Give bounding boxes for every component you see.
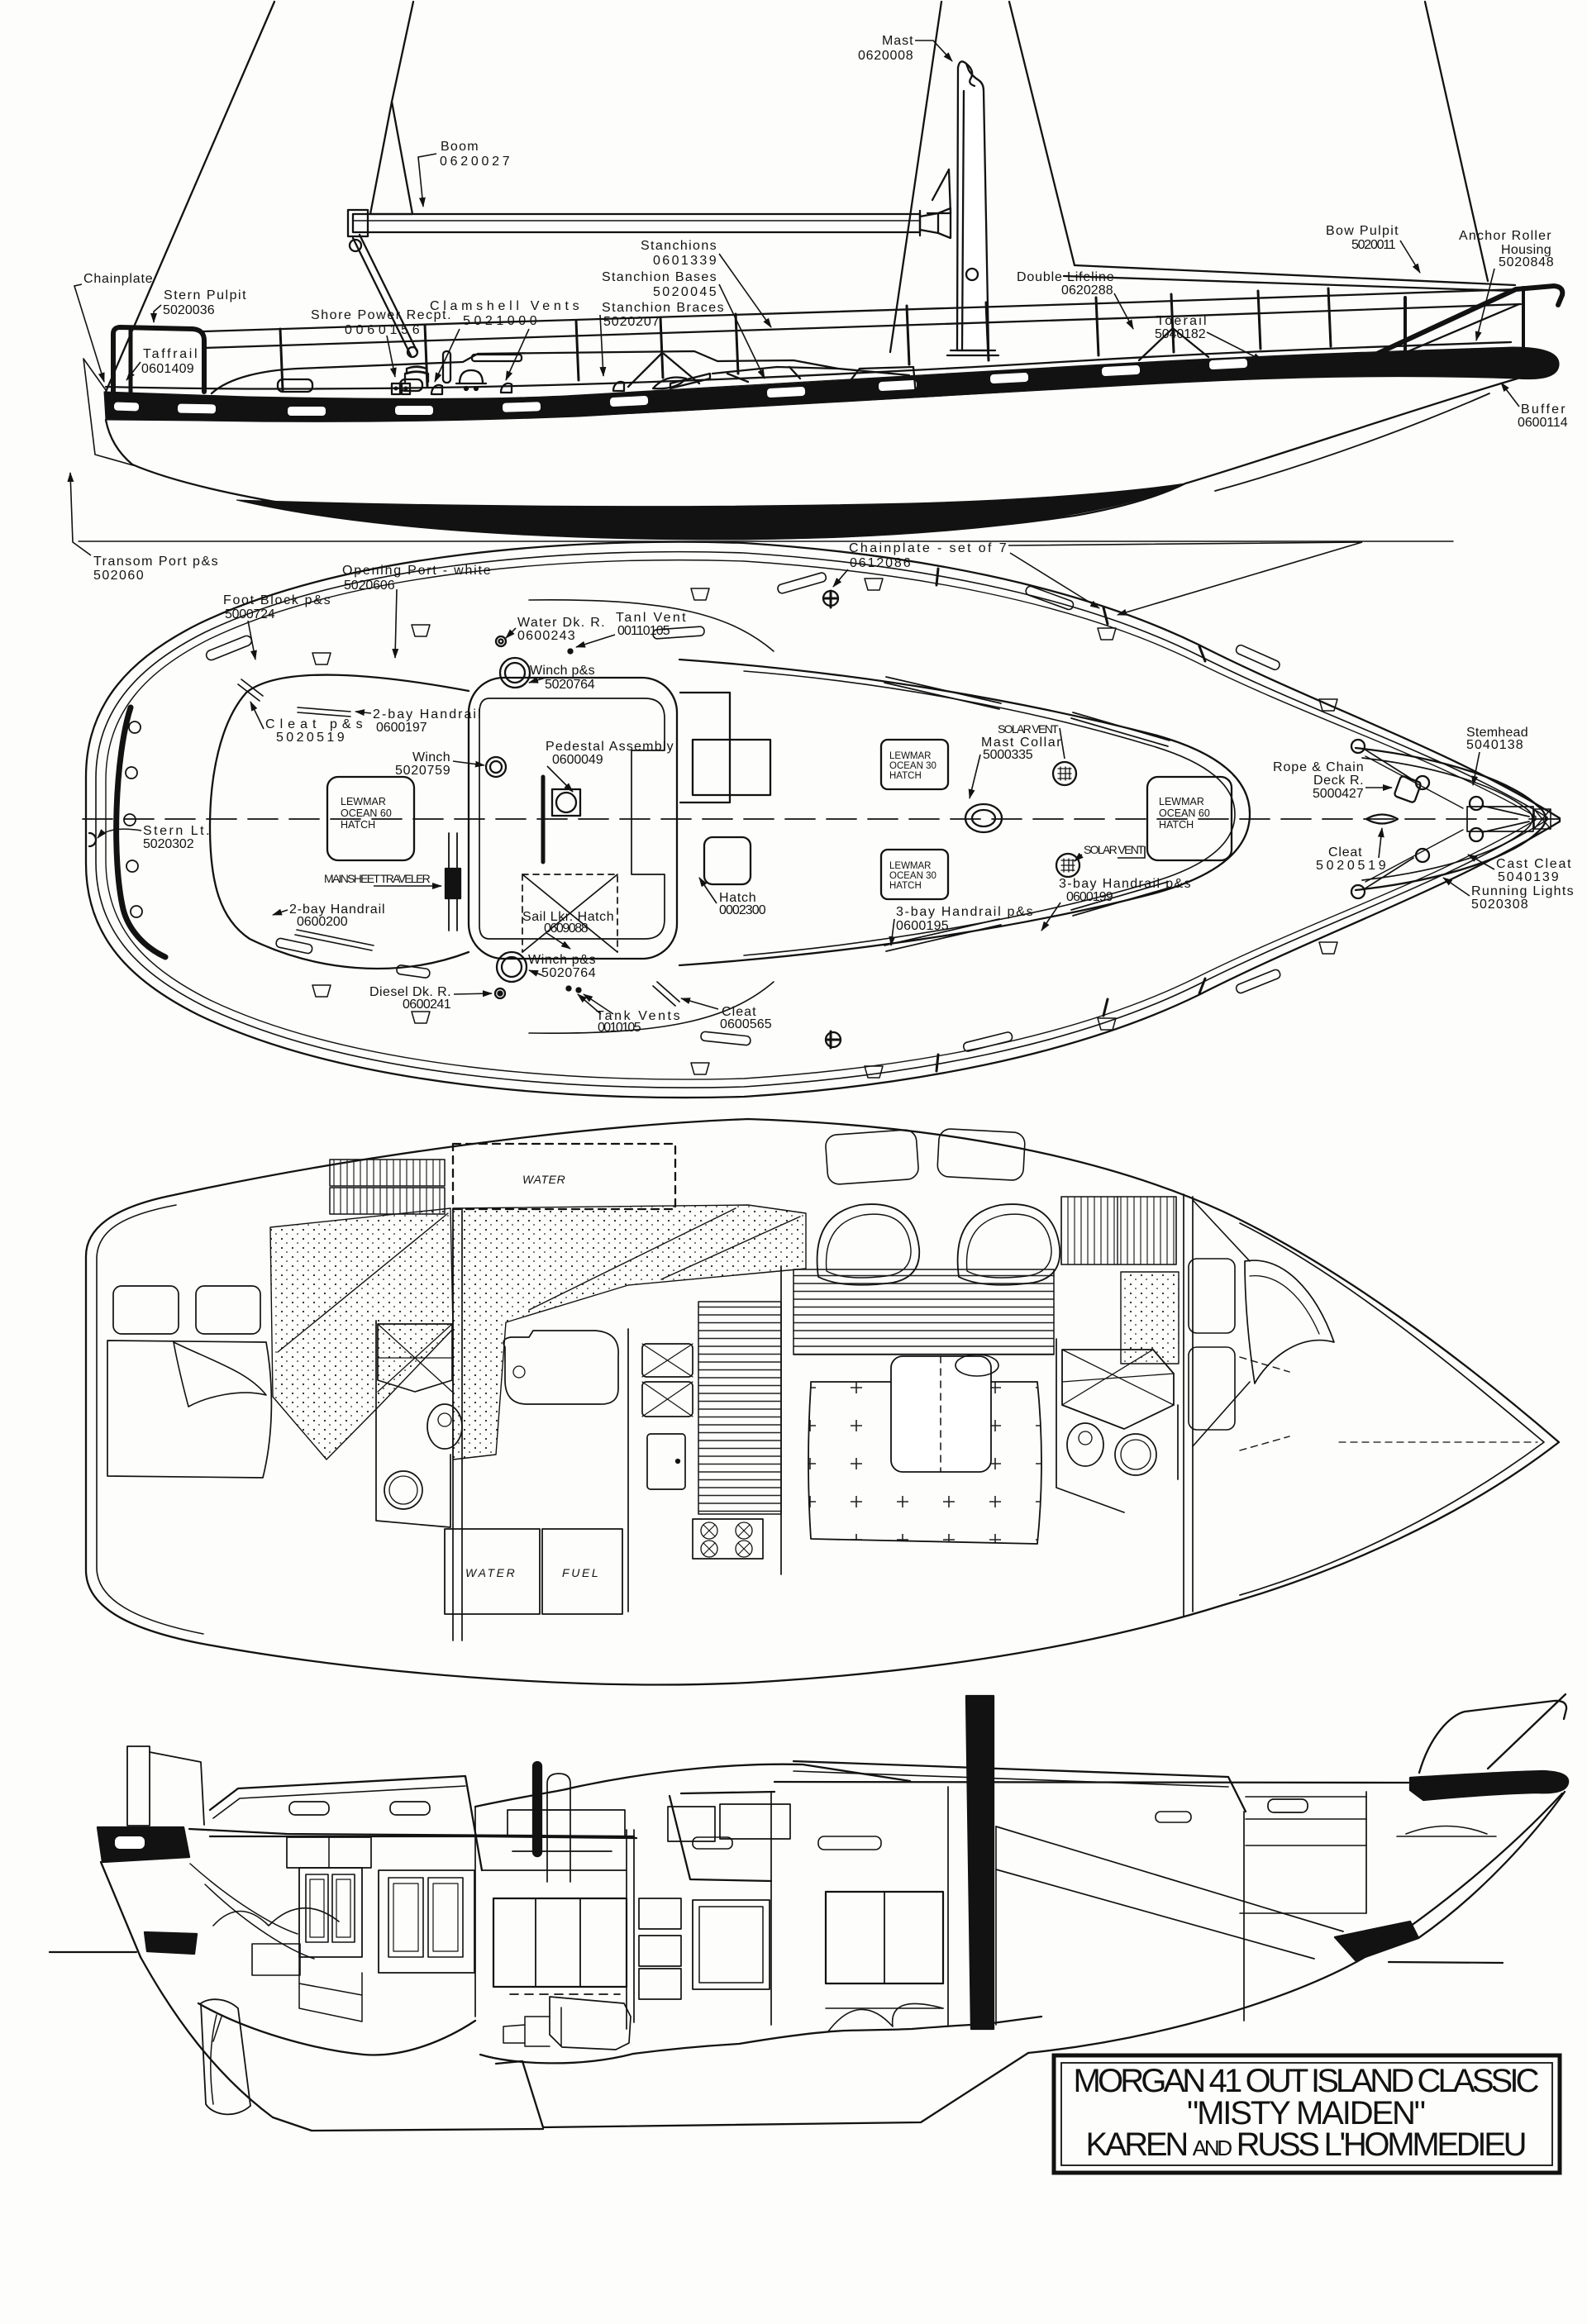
svg-text:LEWMAR: LEWMAR <box>889 861 931 871</box>
svg-text:5040139: 5040139 <box>1498 870 1559 884</box>
svg-text:Deck R.: Deck R. <box>1313 774 1364 788</box>
svg-text:OCEAN 60: OCEAN 60 <box>341 807 392 819</box>
svg-text:LEWMAR: LEWMAR <box>1159 796 1204 807</box>
svg-text:5000427: 5000427 <box>1313 787 1364 801</box>
svg-text:SOLAR VENT: SOLAR VENT <box>1084 843 1145 856</box>
svg-text:502060: 502060 <box>93 569 144 583</box>
svg-text:HATCH: HATCH <box>889 881 922 891</box>
svg-text:Cleat: Cleat <box>1328 845 1362 860</box>
svg-text:0600195: 0600195 <box>896 919 949 933</box>
svg-text:Cleat p&s: Cleat p&s <box>265 717 363 731</box>
svg-text:Running Lights: Running Lights <box>1471 884 1574 898</box>
svg-text:Winch: Winch <box>412 750 450 764</box>
svg-text:5020045: 5020045 <box>653 285 717 299</box>
svg-text:5020764: 5020764 <box>541 966 596 980</box>
svg-text:OCEAN 60: OCEAN 60 <box>1159 807 1210 819</box>
svg-text:MAINSHEET TRAVELER: MAINSHEET TRAVELER <box>324 872 431 885</box>
svg-text:5020764: 5020764 <box>545 678 595 692</box>
svg-text:5020848: 5020848 <box>1499 255 1554 269</box>
svg-text:0612086: 0612086 <box>850 556 911 570</box>
svg-text:HATCH: HATCH <box>889 771 922 781</box>
svg-text:5020207: 5020207 <box>603 315 660 329</box>
svg-text:Water Dk. R.: Water Dk. R. <box>517 616 605 630</box>
svg-text:5020308: 5020308 <box>1471 898 1528 912</box>
svg-text:3-bay Handrail p&s: 3-bay Handrail p&s <box>1059 877 1191 891</box>
svg-text:Stern Lt.: Stern Lt. <box>143 824 210 838</box>
svg-text:Stanchion Braces: Stanchion Braces <box>602 301 724 315</box>
svg-text:Rope & Chain: Rope & Chain <box>1273 760 1364 774</box>
svg-text:FUEL: FUEL <box>562 1566 598 1579</box>
svg-text:Mast: Mast <box>882 34 913 48</box>
svg-text:KAREN AND RUSS L'HOMMEDIEU: KAREN AND RUSS L'HOMMEDIEU <box>1086 2126 1528 2163</box>
svg-text:Boom: Boom <box>441 140 479 154</box>
svg-text:Winch p&s: Winch p&s <box>530 664 595 678</box>
svg-text:Taffrail: Taffrail <box>143 347 198 361</box>
svg-text:Shore Power Recpt.: Shore Power Recpt. <box>311 308 451 322</box>
svg-text:WATER: WATER <box>465 1566 515 1579</box>
svg-text:0600243: 0600243 <box>517 629 575 643</box>
svg-text:Clamshell Vents: Clamshell Vents <box>430 299 579 313</box>
svg-text:Double Lifeline: Double Lifeline <box>1017 270 1114 284</box>
svg-text:5020519: 5020519 <box>276 731 345 745</box>
svg-text:3-bay Handrail p&s: 3-bay Handrail p&s <box>896 905 1033 919</box>
svg-text:LEWMAR: LEWMAR <box>889 751 931 761</box>
svg-text:Pedestal Assembly: Pedestal Assembly <box>546 740 674 754</box>
svg-text:Buffer: Buffer <box>1521 402 1566 417</box>
svg-text:5000335: 5000335 <box>983 748 1033 762</box>
svg-text:5040138: 5040138 <box>1466 738 1523 752</box>
svg-text:0609088: 0609088 <box>544 922 589 936</box>
svg-text:0620008: 0620008 <box>858 49 913 63</box>
svg-text:Chainplate: Chainplate <box>83 272 153 286</box>
svg-text:0620027: 0620027 <box>440 155 510 169</box>
svg-text:5040182: 5040182 <box>1155 327 1206 341</box>
svg-text:Winch p&s: Winch p&s <box>528 953 596 967</box>
svg-text:HATCH: HATCH <box>341 819 375 831</box>
svg-text:Stanchions: Stanchions <box>641 239 717 253</box>
svg-text:5000724: 5000724 <box>225 607 275 621</box>
svg-text:0600114: 0600114 <box>1518 416 1568 430</box>
svg-text:5020606: 5020606 <box>344 579 395 593</box>
svg-text:0600565: 0600565 <box>720 1017 772 1031</box>
svg-text:0010105: 0010105 <box>598 1021 641 1035</box>
svg-text:Chainplate - set of 7: Chainplate - set of 7 <box>849 541 1007 555</box>
svg-text:5020036: 5020036 <box>163 303 215 317</box>
svg-text:0600049: 0600049 <box>552 753 603 767</box>
svg-text:0620288: 0620288 <box>1061 283 1113 298</box>
svg-text:Cast Cleat: Cast Cleat <box>1496 857 1571 871</box>
svg-text:HATCH: HATCH <box>1159 819 1194 831</box>
svg-text:0601409: 0601409 <box>141 362 194 376</box>
svg-text:LEWMAR: LEWMAR <box>341 796 386 807</box>
svg-text:0601339: 0601339 <box>653 254 717 268</box>
svg-text:SOLAR VENT: SOLAR VENT <box>998 722 1059 736</box>
svg-text:0002300: 0002300 <box>719 903 766 917</box>
svg-text:WATER: WATER <box>522 1173 565 1186</box>
svg-text:Stanchion Bases: Stanchion Bases <box>602 270 717 284</box>
svg-text:5021000: 5021000 <box>463 314 537 328</box>
svg-text:0600200: 0600200 <box>297 915 348 929</box>
svg-text:Tanl Vent: Tanl Vent <box>616 611 686 625</box>
svg-text:5020302: 5020302 <box>143 837 194 851</box>
svg-text:0060156: 0060156 <box>345 323 420 337</box>
svg-text:Bow Pulpit: Bow Pulpit <box>1326 224 1399 238</box>
svg-text:0600241: 0600241 <box>403 998 451 1012</box>
svg-text:Foot Block p&s: Foot Block p&s <box>223 593 331 607</box>
svg-text:0600197: 0600197 <box>376 721 427 735</box>
svg-text:Anchor Roller: Anchor Roller <box>1459 229 1551 243</box>
svg-text:Opening Port - white: Opening Port - white <box>342 564 491 578</box>
svg-text:Transom Port p&s: Transom Port p&s <box>93 555 218 569</box>
svg-text:0600199: 0600199 <box>1066 890 1113 904</box>
svg-text:MORGAN 41 OUT ISLAND CLASSIC: MORGAN 41 OUT ISLAND CLASSIC <box>1074 2063 1541 2099</box>
svg-text:OCEAN 30: OCEAN 30 <box>889 761 936 771</box>
svg-text:00110105: 00110105 <box>617 624 670 638</box>
svg-text:5020011: 5020011 <box>1351 238 1396 252</box>
svg-text:Stern Pulpit: Stern Pulpit <box>164 288 246 302</box>
svg-text:OCEAN 30: OCEAN 30 <box>889 871 936 881</box>
svg-text:2-bay Handrail: 2-bay Handrail <box>373 707 481 721</box>
svg-text:5020759: 5020759 <box>395 764 450 778</box>
svg-text:5020519: 5020519 <box>1316 859 1386 873</box>
